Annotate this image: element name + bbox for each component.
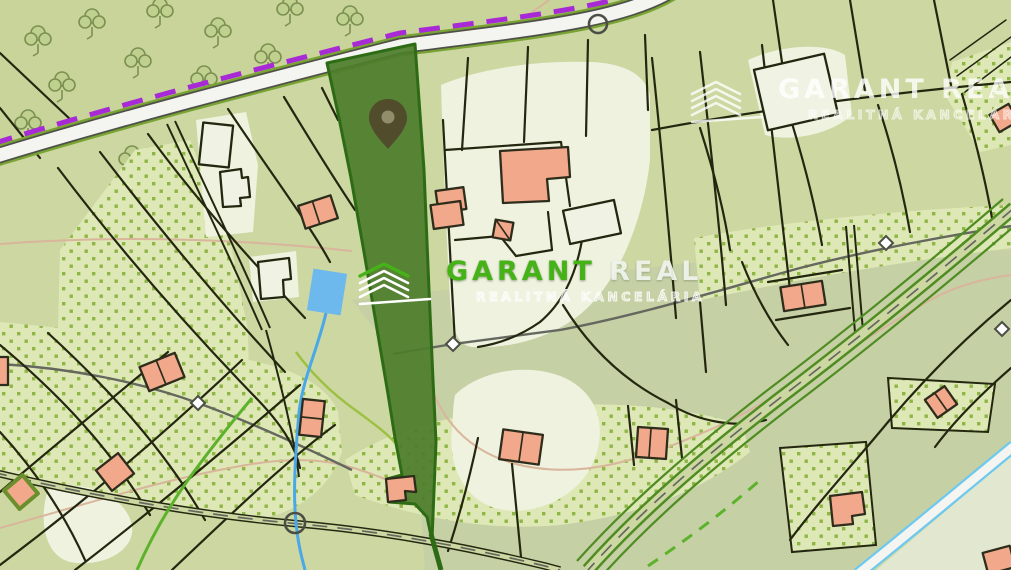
pond (307, 269, 347, 316)
map-viewport[interactable]: GARANT REAL REALITNÁ KANCELÁRIA GARANT R… (0, 0, 1011, 570)
map-canvas[interactable] (0, 0, 1011, 570)
